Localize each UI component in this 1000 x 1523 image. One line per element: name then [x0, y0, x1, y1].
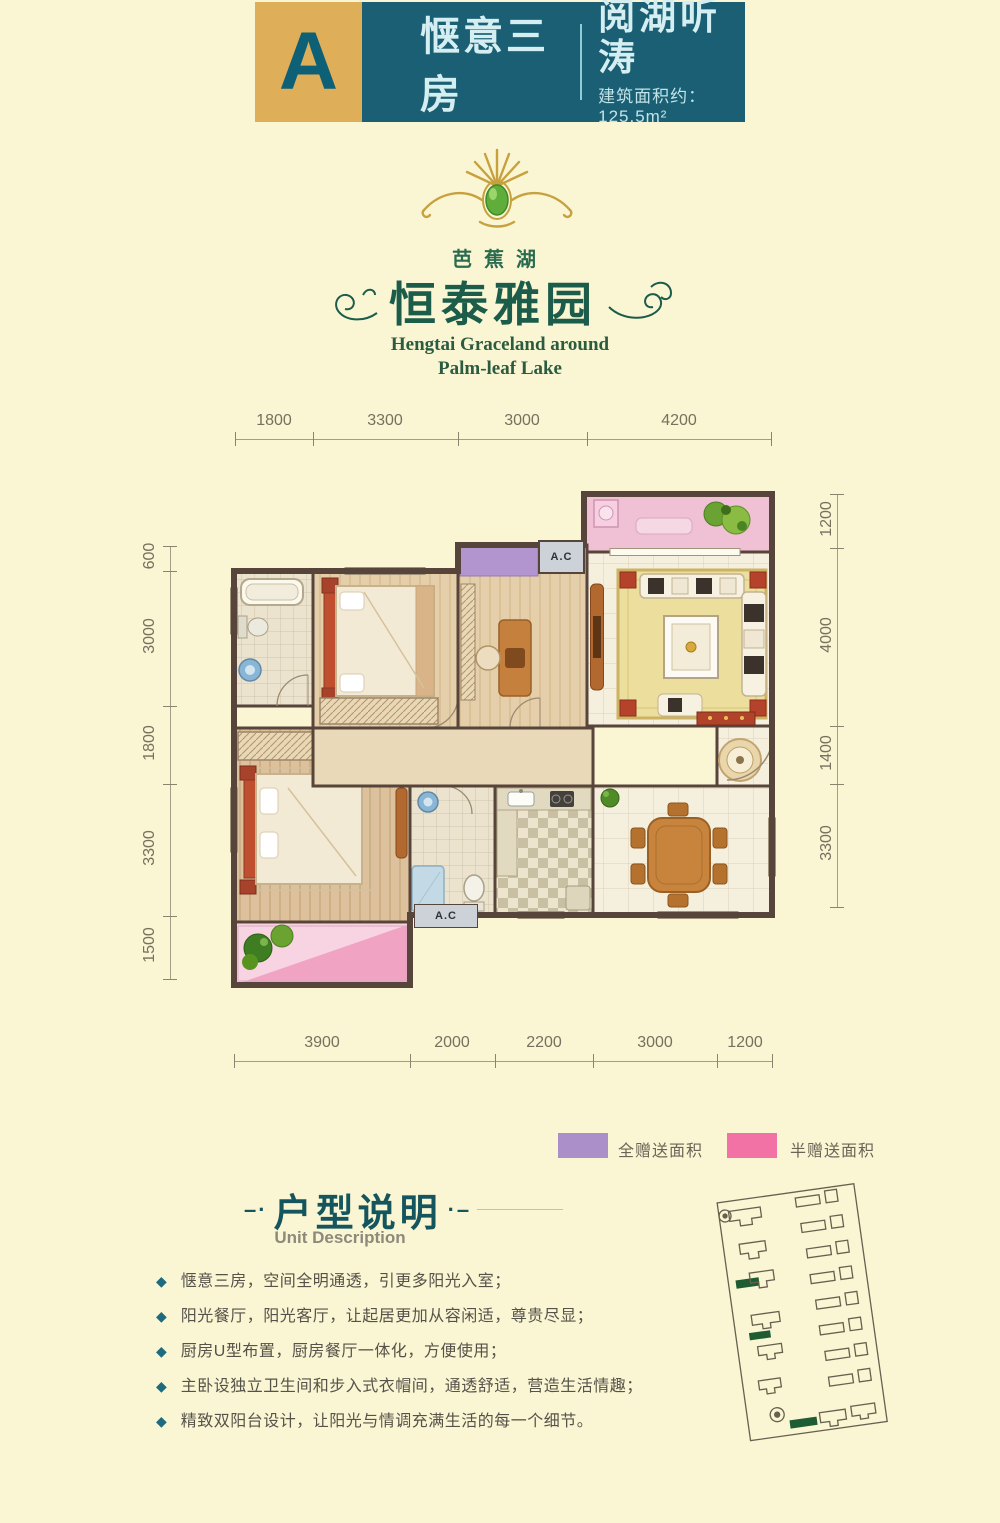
flyer-page: A 惬意三房 阅湖听涛 建筑面积约：125.5m² 芭蕉湖 恒泰雅园	[0, 0, 1000, 1523]
dim-label: 3900	[292, 1034, 352, 1052]
dim-label: 1200	[818, 489, 836, 549]
full-gift-area	[460, 546, 538, 576]
header-banner: 惬意三房 阅湖听涛 建筑面积约：125.5m²	[362, 2, 745, 122]
bullet-item: ◆ 阳光餐厅，阳光客厅，让起居更加从容闲适，尊贵尽显；	[156, 1307, 716, 1326]
kitchen	[495, 786, 593, 919]
dim-label: 3000	[625, 1034, 685, 1052]
unit-letter: A	[279, 21, 338, 103]
floor-plan	[228, 488, 795, 990]
bathroom-top	[231, 571, 314, 706]
unit-letter-badge: A	[255, 2, 362, 122]
tagline-label: 阅湖听涛	[598, 0, 745, 78]
bullet-text: 厨房U型布置，厨房餐厅一体化，方便使用；	[181, 1342, 507, 1361]
bullet-item: ◆ 主卧设独立卫生间和步入式衣帽间，通透舒适，营造生活情趣；	[156, 1377, 716, 1396]
dim-label: 3300	[141, 818, 159, 878]
dim-label: 4200	[649, 412, 709, 430]
bullet-diamond-icon: ◆	[156, 1377, 167, 1396]
legend-swatch-half-gift	[727, 1133, 777, 1158]
bullet-diamond-icon: ◆	[156, 1272, 167, 1291]
dim-label: 2200	[514, 1034, 574, 1052]
legend-label-full-gift: 全赠送面积	[618, 1137, 703, 1161]
balcony-top	[584, 494, 772, 552]
bullet-diamond-icon: ◆	[156, 1412, 167, 1431]
bullet-item: ◆ 惬意三房，空间全明通透，引更多阳光入室；	[156, 1272, 716, 1291]
legend-swatch-full-gift	[558, 1133, 608, 1158]
ac-unit-bottom: A.C	[414, 904, 478, 928]
bedroom-2	[313, 568, 458, 729]
site-plan	[712, 1178, 897, 1458]
hallway	[313, 728, 593, 786]
dim-label: 4000	[818, 605, 836, 665]
banner-divider	[580, 24, 582, 100]
bullet-text: 精致双阳台设计，让阳光与情调充满生活的每一个细节。	[181, 1412, 594, 1431]
english-name-line1: Hengtai Graceland around	[0, 334, 1000, 356]
bullet-diamond-icon: ◆	[156, 1342, 167, 1361]
dim-label: 1200	[715, 1034, 775, 1052]
bullet-text: 惬意三房，空间全明通透，引更多阳光入室；	[181, 1272, 511, 1291]
dim-label: 3000	[141, 606, 159, 666]
bullet-diamond-icon: ◆	[156, 1307, 167, 1326]
logo-crest-icon	[412, 138, 582, 238]
dim-label: 1500	[141, 915, 159, 975]
dim-label: 2000	[422, 1034, 482, 1052]
bathroom-bottom	[410, 786, 495, 915]
dim-label: 1400	[818, 723, 836, 783]
dim-label: 1800	[244, 412, 304, 430]
living-room	[587, 549, 772, 727]
brand-name: 恒泰雅园	[389, 266, 597, 335]
legend-label-half-gift: 半赠送面积	[790, 1137, 875, 1161]
unit-type-label: 惬意三房	[420, 4, 562, 120]
title-rule	[477, 1209, 563, 1210]
dim-label: 3300	[355, 412, 415, 430]
description-subtitle: Unit Description	[250, 1228, 430, 1248]
ac-unit-top: A.C	[538, 540, 585, 574]
title-dash-right: ·–	[448, 1197, 472, 1223]
dim-label: 3000	[492, 412, 552, 430]
brand-flourish-left-icon	[323, 279, 379, 323]
dim-label: 3300	[818, 813, 836, 873]
area-label: 建筑面积约：125.5m²	[598, 82, 745, 127]
dim-label: 1800	[141, 713, 159, 773]
dining-room	[593, 786, 776, 919]
bullet-text: 阳光餐厅，阳光客厅，让起居更加从容闲适，尊贵尽显；	[181, 1307, 594, 1326]
brand-row: 恒泰雅园	[0, 266, 1000, 335]
bullet-item: ◆ 厨房U型布置，厨房餐厅一体化，方便使用；	[156, 1342, 716, 1361]
balcony-bottom	[234, 922, 410, 985]
dim-label: 600	[141, 526, 159, 586]
title-dash-left: –·	[244, 1197, 268, 1223]
bullet-text: 主卧设独立卫生间和步入式衣帽间，通透舒适，营造生活情趣；	[181, 1377, 643, 1396]
english-name-line2: Palm-leaf Lake	[0, 358, 1000, 380]
bullet-list: ◆ 惬意三房，空间全明通透，引更多阳光入室； ◆ 阳光餐厅，阳光客厅，让起居更加…	[156, 1272, 716, 1447]
bullet-item: ◆ 精致双阳台设计，让阳光与情调充满生活的每一个细节。	[156, 1412, 716, 1431]
brand-flourish-right-icon	[607, 277, 677, 325]
